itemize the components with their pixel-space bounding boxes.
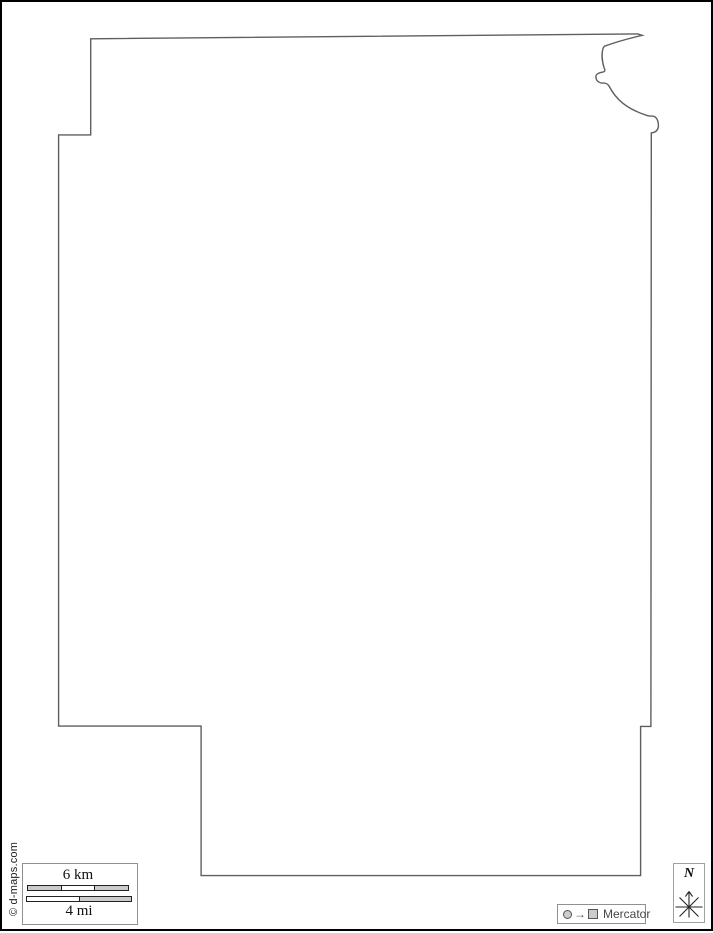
scale-mi-segment <box>79 897 132 901</box>
scale-km-label: 6 km <box>27 867 129 884</box>
compass-rose-icon <box>674 887 704 923</box>
projection-badge: → Mercator <box>557 904 646 924</box>
scale-bar-box: 6 km 4 mi <box>22 863 138 925</box>
scale-km-segment <box>28 886 61 890</box>
scale-mi-label: 4 mi <box>26 903 132 920</box>
region-outline <box>59 34 659 876</box>
scale-mi-segment <box>27 897 79 901</box>
scale-bar-mi <box>26 896 132 902</box>
arrow-right-icon: → <box>574 908 586 920</box>
north-label: N <box>674 866 704 883</box>
scale-km-segment <box>61 886 95 890</box>
copyright-credit: © d-maps.com <box>8 842 20 916</box>
sphere-circle-icon <box>563 910 572 919</box>
map-canvas <box>0 0 713 933</box>
compass-box: N <box>673 863 705 923</box>
scale-km-segment <box>94 886 128 890</box>
scale-bar-km <box>27 885 129 891</box>
flat-map-square-icon <box>588 909 598 919</box>
projection-label: Mercator <box>603 907 650 921</box>
